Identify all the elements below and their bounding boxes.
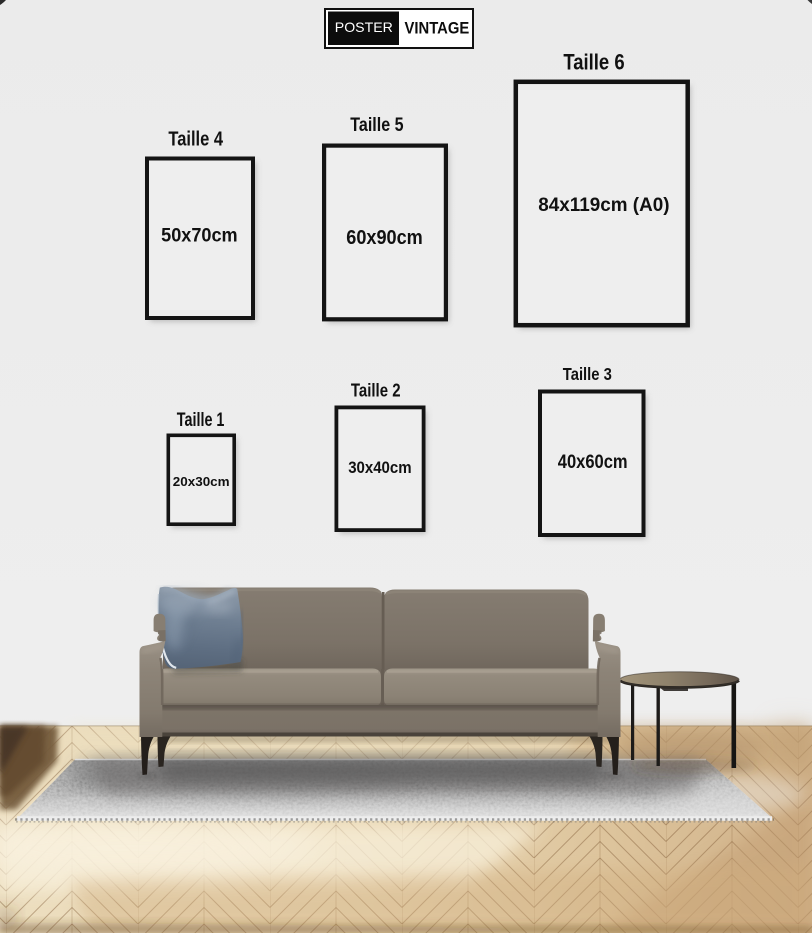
svg-text:Taille 6: Taille 6: [563, 50, 624, 75]
svg-text:Taille 2: Taille 2: [351, 380, 401, 401]
svg-text:60x90cm: 60x90cm: [346, 227, 423, 249]
svg-text:POSTER: POSTER: [335, 19, 393, 35]
svg-text:Taille 1: Taille 1: [177, 410, 225, 431]
svg-text:Taille 5: Taille 5: [350, 114, 403, 136]
svg-text:20x30cm: 20x30cm: [173, 474, 230, 489]
svg-text:VINTAGE: VINTAGE: [405, 18, 470, 37]
svg-text:Taille 3: Taille 3: [563, 364, 612, 384]
svg-text:Taille 4: Taille 4: [168, 129, 223, 151]
svg-text:84x119cm (A0): 84x119cm (A0): [538, 194, 669, 216]
svg-text:40x60cm: 40x60cm: [558, 452, 628, 473]
svg-text:30x40cm: 30x40cm: [348, 459, 411, 477]
svg-text:50x70cm: 50x70cm: [161, 225, 238, 247]
